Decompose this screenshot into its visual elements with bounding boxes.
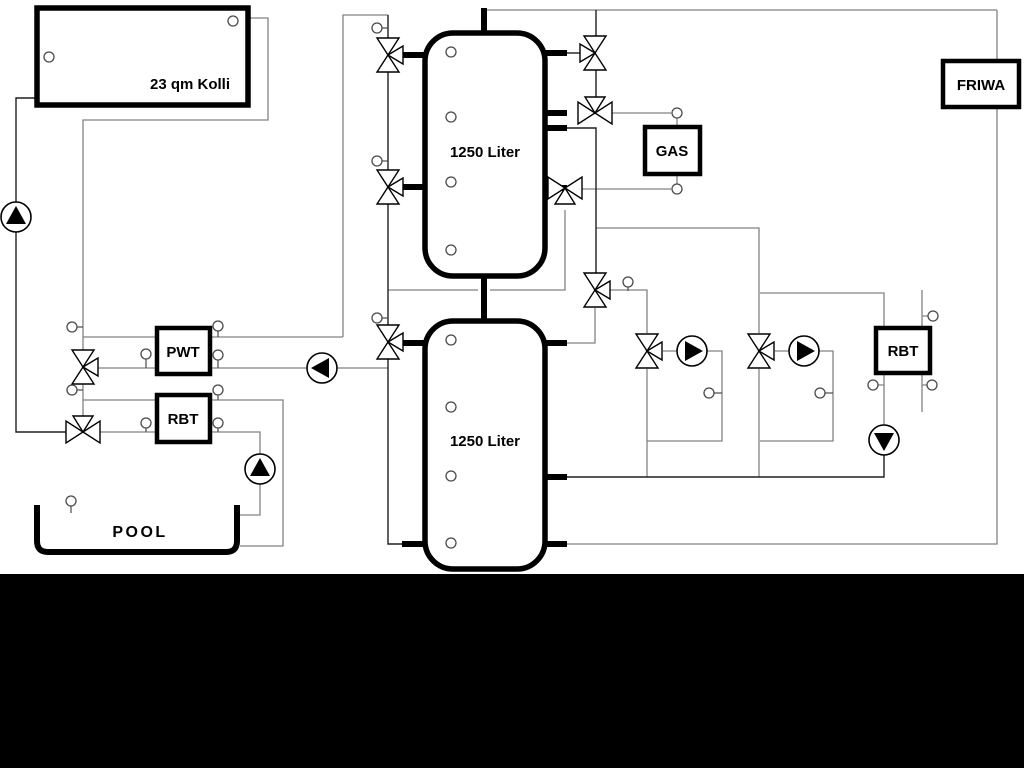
temp-sensor-icon[interactable] [372,23,382,33]
three-way-valve[interactable] [66,416,100,443]
temp-sensor-icon[interactable] [446,538,456,548]
three-way-valve[interactable] [548,177,582,204]
pump-rbt-right[interactable] [869,425,899,455]
pump-circuit-2[interactable] [789,336,819,366]
temp-sensor-icon[interactable] [672,184,682,194]
friwa-label: FRIWA [957,77,1005,94]
buffer-tank-1[interactable]: 1250 Liter [425,33,545,276]
three-way-valve[interactable] [748,334,774,368]
temp-sensor-icon[interactable] [67,385,77,395]
pipe-segment [610,290,647,477]
three-way-valve[interactable] [377,170,403,204]
three-way-valve[interactable] [578,97,612,124]
temp-sensor-icon[interactable] [141,349,151,359]
temp-sensor-icon[interactable] [44,52,54,62]
pump-pwt[interactable] [307,353,337,383]
temp-sensor-icon[interactable] [446,245,456,255]
pwt-heat-exchanger[interactable]: PWT [157,328,210,374]
tank1-label: 1250 Liter [450,144,520,161]
temp-sensor-icon[interactable] [228,16,238,26]
pipe-segment [760,293,884,328]
temp-sensor-icon[interactable] [672,108,682,118]
schematic-canvas: 23 qm Kolli 1250 Liter 1250 Liter GAS FR… [0,0,1024,768]
pipe-segment [567,10,997,544]
pool[interactable]: POOL [37,505,237,552]
pipe-segment [388,15,402,544]
pwt-label: PWT [166,344,199,361]
three-way-valve[interactable] [377,325,403,359]
pipe-segment [567,308,595,343]
collector-label: 23 qm Kolli [150,76,230,93]
temp-sensor-icon[interactable] [623,277,633,287]
temp-sensor-icon[interactable] [446,47,456,57]
pool-label: POOL [112,524,167,541]
temp-sensor-icon[interactable] [213,418,223,428]
pipe-segment [565,455,884,477]
temp-sensor-icon[interactable] [372,313,382,323]
rbt-left-heat-exchanger[interactable]: RBT [157,395,210,442]
rbt-left-label: RBT [168,411,199,428]
temp-sensor-icon[interactable] [446,335,456,345]
pipe-segment [16,98,68,432]
pump-solar[interactable] [1,202,31,232]
temp-sensor-icon[interactable] [868,380,878,390]
three-way-valve[interactable] [377,38,403,72]
tank2-label: 1250 Liter [450,433,520,450]
temp-sensor-icon[interactable] [446,112,456,122]
buffer-tank-2[interactable]: 1250 Liter [425,321,545,569]
solar-collector[interactable]: 23 qm Kolli [37,8,248,105]
temp-sensor-icon[interactable] [66,496,76,506]
temp-sensor-icon[interactable] [213,385,223,395]
pump-pool[interactable] [245,454,275,484]
temp-sensor-icon[interactable] [67,322,77,332]
pipe-segment [98,432,260,515]
temp-sensor-icon[interactable] [815,388,825,398]
temp-sensor-icon[interactable] [446,471,456,481]
three-way-valve[interactable] [72,350,98,384]
gas-boiler[interactable]: GAS [645,127,700,174]
three-way-valve[interactable] [584,273,610,307]
pump-circuit-1[interactable] [677,336,707,366]
bottom-mask [0,574,1024,768]
gas-label: GAS [656,143,689,160]
three-way-valve[interactable] [636,334,662,368]
temp-sensor-icon[interactable] [446,402,456,412]
pipe-segment [878,373,927,412]
temp-sensor-icon[interactable] [213,321,223,331]
temp-sensor-icon[interactable] [446,177,456,187]
rbt-right-heat-exchanger[interactable]: RBT [876,328,930,373]
temp-sensor-icon[interactable] [141,418,151,428]
three-way-valve[interactable] [580,36,606,70]
temp-sensor-icon[interactable] [213,350,223,360]
rbt-right-label: RBT [888,343,919,360]
temp-sensor-icon[interactable] [372,156,382,166]
pipe-segment [922,290,928,328]
friwa-station[interactable]: FRIWA [943,61,1019,107]
temp-sensor-icon[interactable] [928,311,938,321]
temp-sensor-icon[interactable] [704,388,714,398]
temp-sensor-icon[interactable] [927,380,937,390]
